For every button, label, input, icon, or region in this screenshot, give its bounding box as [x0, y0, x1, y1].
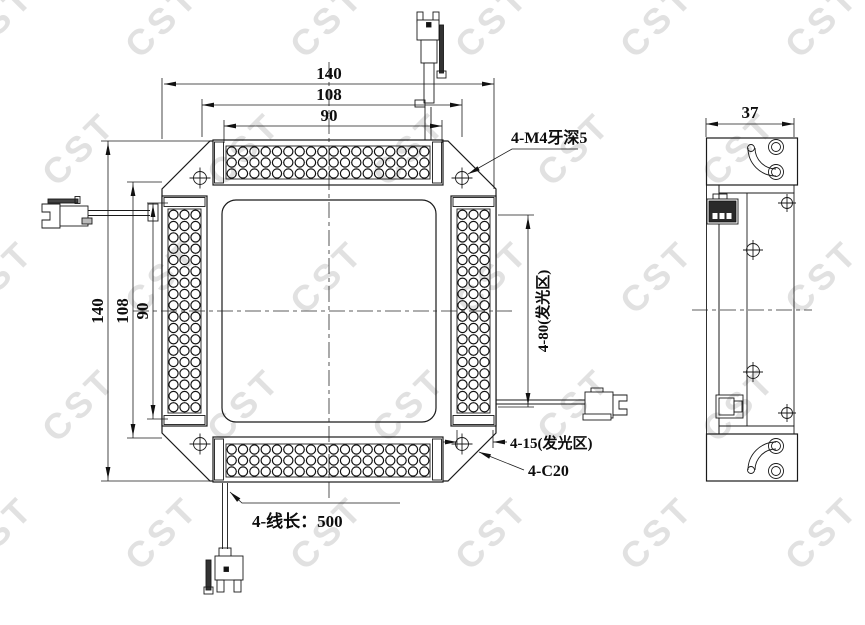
- arrowhead: [106, 467, 111, 479]
- arrowhead: [224, 124, 236, 129]
- watermark-text: CST: [859, 359, 865, 450]
- arrowhead: [706, 122, 718, 127]
- watermark-text: CST: [364, 359, 455, 450]
- arrowhead: [151, 405, 156, 417]
- arrowhead: [202, 103, 214, 108]
- dim-overall-width-text: 140: [316, 64, 342, 83]
- watermark-text: CST: [199, 359, 290, 450]
- watermark-text: CST: [529, 103, 620, 194]
- arrowhead: [526, 217, 531, 229]
- watermark-text: CST: [0, 487, 42, 578]
- watermark-text: CST: [447, 487, 538, 578]
- watermark-text: CST: [282, 487, 373, 578]
- dim-mount-width-text: 108: [316, 85, 342, 104]
- label-chamfer: 4-C20: [528, 463, 569, 480]
- watermark-text: CST: [34, 103, 125, 194]
- dimension-emit-width-group: [443, 430, 507, 448]
- watermark-text: CST: [777, 0, 865, 66]
- screw-hole: [452, 168, 473, 189]
- leader-cable: [230, 492, 400, 503]
- arrowhead: [782, 122, 794, 127]
- watermark-text: CST: [612, 231, 703, 322]
- arrowhead: [131, 424, 136, 436]
- watermark-text: CST: [612, 487, 703, 578]
- arrowhead: [151, 205, 156, 217]
- watermark-text: CST: [117, 0, 208, 66]
- screw-hole: [190, 434, 211, 455]
- watermark-text: CST: [282, 231, 373, 322]
- arrowhead: [131, 184, 136, 196]
- watermark-text: CST: [117, 487, 208, 578]
- arrowhead: [479, 452, 491, 459]
- watermark-text: CST: [612, 0, 703, 66]
- side-connector-top: [707, 194, 738, 224]
- watermark-text: CST: [859, 103, 865, 194]
- arrowhead: [526, 393, 531, 405]
- arrowhead: [493, 440, 505, 445]
- watermark-text: CST: [777, 487, 865, 578]
- watermark-text: CST: [0, 0, 42, 66]
- cable-left: [42, 197, 158, 229]
- dim-window-width-text: 90: [321, 106, 338, 125]
- arrowhead: [450, 103, 462, 108]
- watermark-text: CST: [694, 359, 785, 450]
- watermark-text: CST: [34, 359, 125, 450]
- watermark-text: CST: [447, 0, 538, 66]
- dim-overall-height-text: 140: [88, 298, 107, 324]
- screw-hole: [743, 240, 763, 260]
- screw-hole: [778, 404, 796, 422]
- arrowhead: [164, 82, 176, 87]
- watermark-text: CST: [282, 0, 373, 66]
- label-emit-length: 4-80(发光区): [534, 270, 552, 353]
- screw-hole: [778, 194, 796, 212]
- arrowhead: [482, 82, 494, 87]
- watermark-text: CST: [0, 231, 42, 322]
- screw-hole: [452, 434, 473, 455]
- side-bottom-bracket-detail: [748, 439, 784, 479]
- watermark-text: CST: [694, 103, 785, 194]
- watermark-text: CST: [777, 231, 865, 322]
- drawing-canvas: 140 108 90 140 108 90 4-80(发光区): [0, 0, 865, 625]
